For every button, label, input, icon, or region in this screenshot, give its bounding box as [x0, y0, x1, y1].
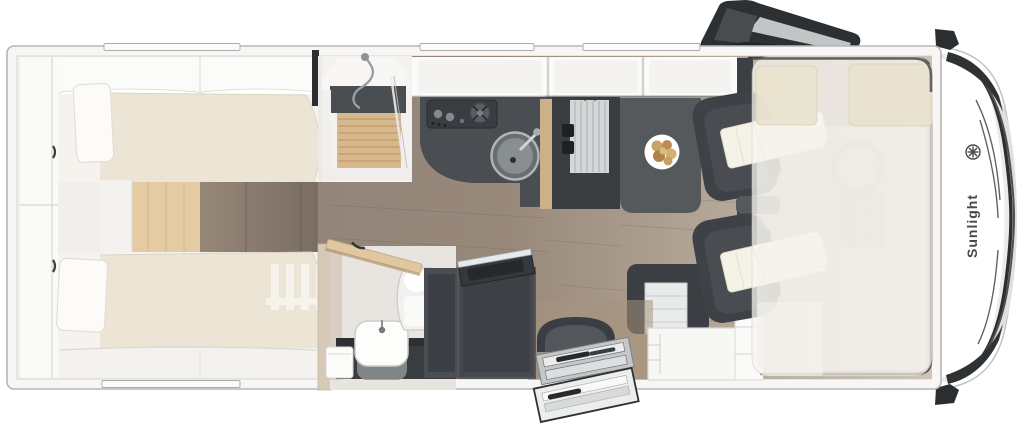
svg-text:Sunlight: Sunlight — [964, 194, 980, 258]
